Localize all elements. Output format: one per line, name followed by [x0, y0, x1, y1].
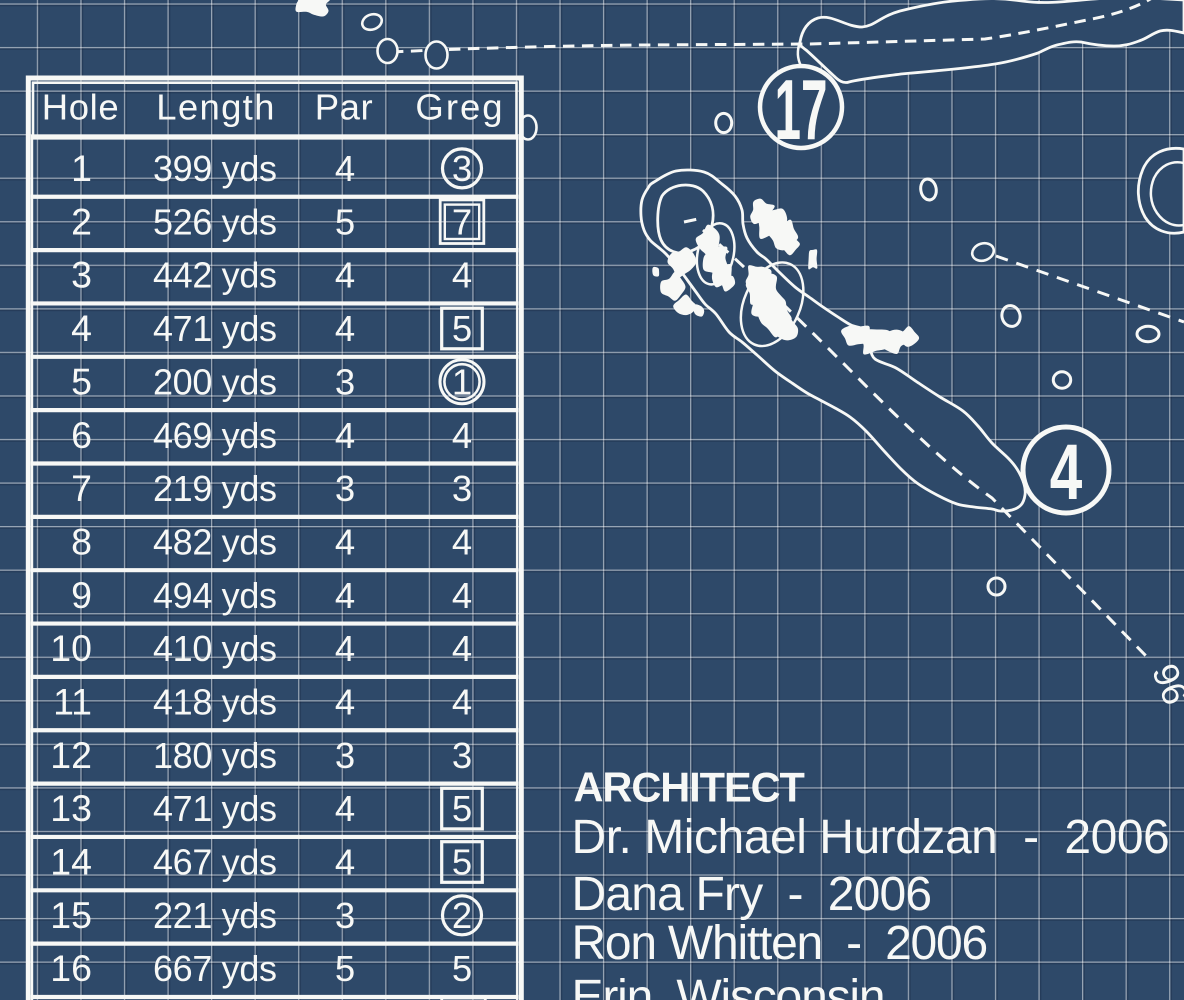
svg-text:Length: Length — [156, 87, 275, 128]
svg-text:4: 4 — [452, 255, 472, 296]
svg-text:6: 6 — [71, 414, 92, 456]
svg-text:3: 3 — [335, 361, 355, 402]
svg-text:4: 4 — [71, 307, 92, 349]
svg-text:4: 4 — [335, 415, 355, 456]
svg-text:9: 9 — [71, 574, 92, 616]
svg-text:3: 3 — [71, 254, 92, 296]
svg-text:7: 7 — [71, 467, 92, 509]
svg-text:469 yds: 469 yds — [153, 415, 277, 456]
svg-text:8: 8 — [71, 521, 92, 563]
svg-text:14: 14 — [50, 841, 92, 883]
svg-text:4: 4 — [452, 522, 472, 563]
svg-text:ARCHITECT: ARCHITECT — [574, 764, 805, 811]
svg-text:17: 17 — [775, 62, 828, 157]
svg-text:200 yds: 200 yds — [153, 361, 277, 402]
svg-text:494 yds: 494 yds — [153, 575, 277, 616]
svg-text:Dr. Michael Hurdzan - 2006: Dr. Michael Hurdzan - 2006 — [572, 811, 1170, 864]
svg-text:3: 3 — [452, 468, 472, 509]
svg-text:4: 4 — [452, 415, 472, 456]
svg-text:2: 2 — [71, 200, 92, 242]
svg-text:2: 2 — [452, 895, 472, 936]
svg-text:15: 15 — [50, 894, 92, 936]
svg-text:Hole: Hole — [42, 87, 119, 128]
svg-text:4: 4 — [335, 148, 355, 189]
svg-text:221 yds: 221 yds — [153, 895, 277, 936]
svg-text:16: 16 — [50, 947, 92, 989]
svg-text:1: 1 — [452, 361, 472, 402]
svg-text:7: 7 — [452, 201, 472, 242]
svg-text:418 yds: 418 yds — [153, 682, 277, 723]
svg-text:1: 1 — [71, 147, 92, 189]
svg-text:11: 11 — [53, 681, 92, 723]
svg-text:4: 4 — [452, 682, 472, 723]
svg-text:5: 5 — [335, 948, 355, 989]
svg-text:482 yds: 482 yds — [153, 522, 277, 563]
svg-text:Ron Whitten - 2006: Ron Whitten - 2006 — [572, 917, 987, 970]
svg-text:3: 3 — [335, 468, 355, 509]
svg-text:4: 4 — [335, 682, 355, 723]
svg-text:5: 5 — [71, 360, 92, 402]
svg-text:3: 3 — [335, 735, 355, 776]
svg-text:4: 4 — [335, 788, 355, 829]
svg-text:Par: Par — [315, 87, 374, 128]
svg-text:13: 13 — [50, 787, 92, 829]
svg-text:410 yds: 410 yds — [153, 628, 277, 669]
svg-text:5: 5 — [452, 842, 472, 883]
svg-text:Dana Fry - 2006: Dana Fry - 2006 — [572, 868, 932, 921]
svg-text:4: 4 — [335, 628, 355, 669]
svg-text:4: 4 — [335, 255, 355, 296]
svg-text:5: 5 — [452, 308, 472, 349]
svg-text:442 yds: 442 yds — [153, 255, 277, 296]
svg-text:5: 5 — [452, 948, 472, 989]
svg-text:471 yds: 471 yds — [153, 788, 277, 829]
svg-text:4: 4 — [335, 575, 355, 616]
svg-text:180 yds: 180 yds — [153, 735, 277, 776]
svg-text:399 yds: 399 yds — [153, 148, 277, 189]
svg-text:4: 4 — [335, 522, 355, 563]
svg-text:Greg: Greg — [415, 87, 504, 128]
svg-text:219 yds: 219 yds — [153, 468, 277, 509]
svg-text:3: 3 — [452, 735, 472, 776]
svg-text:471 yds: 471 yds — [153, 308, 277, 349]
svg-text:3: 3 — [452, 148, 472, 189]
svg-text:12: 12 — [50, 734, 92, 776]
svg-text:4: 4 — [452, 628, 472, 669]
svg-text:526 yds: 526 yds — [153, 201, 277, 242]
svg-text:Erin, Wisconsin: Erin, Wisconsin — [572, 971, 885, 1000]
svg-text:5: 5 — [452, 788, 472, 829]
svg-text:4: 4 — [335, 308, 355, 349]
svg-text:5: 5 — [335, 201, 355, 242]
svg-text:467 yds: 467 yds — [153, 842, 277, 883]
svg-text:10: 10 — [50, 627, 92, 669]
svg-text:4: 4 — [335, 842, 355, 883]
svg-text:4: 4 — [1050, 427, 1083, 516]
svg-text:4: 4 — [452, 575, 472, 616]
svg-text:3: 3 — [335, 895, 355, 936]
svg-text:667 yds: 667 yds — [153, 948, 277, 989]
